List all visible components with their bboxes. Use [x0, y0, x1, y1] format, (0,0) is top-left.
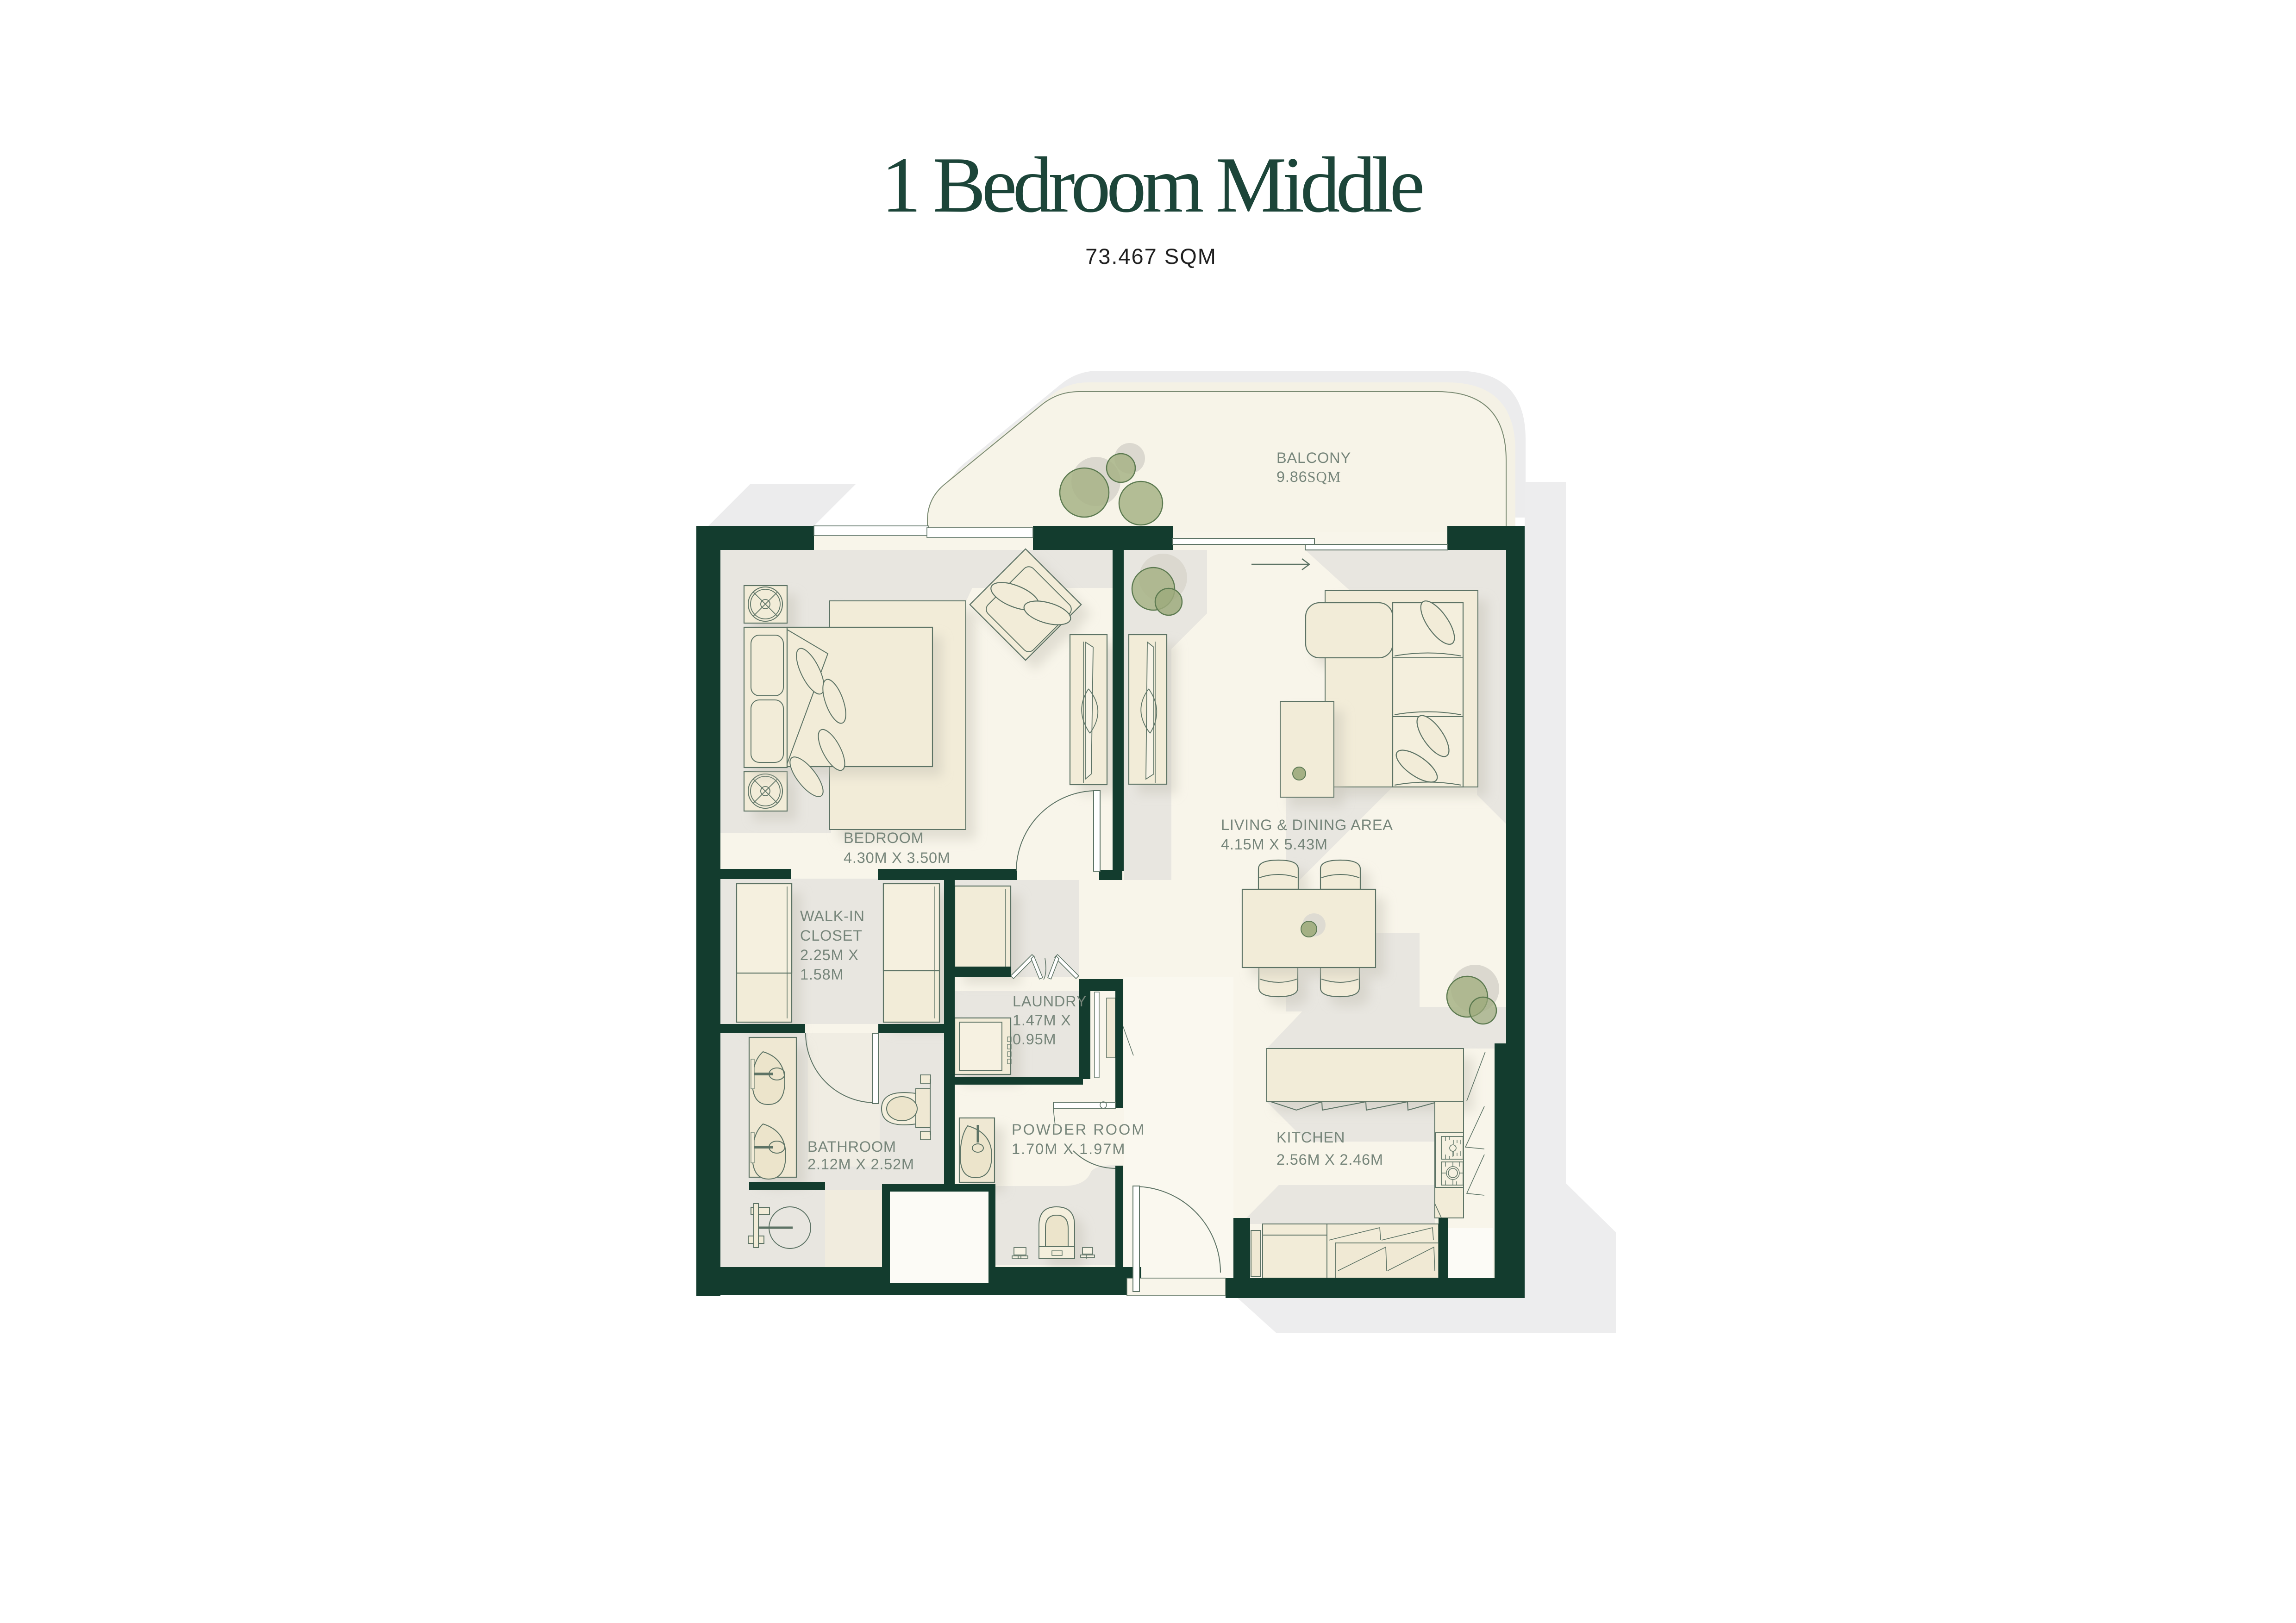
svg-text:KITCHEN: KITCHEN: [1276, 1129, 1345, 1146]
svg-text:73.467 SQM: 73.467 SQM: [1085, 244, 1217, 268]
svg-text:2.12M X 2.52M: 2.12M X 2.52M: [807, 1156, 914, 1173]
svg-text:1.47M X: 1.47M X: [1013, 1012, 1071, 1029]
svg-text:4.30M X 3.50M: 4.30M X 3.50M: [844, 849, 951, 866]
svg-text:1.70M X 1.97M: 1.70M X 1.97M: [1012, 1141, 1126, 1157]
svg-text:4.15M X 5.43M: 4.15M X 5.43M: [1221, 836, 1328, 853]
svg-text:1.58M: 1.58M: [800, 966, 844, 983]
svg-text:LAUNDRY: LAUNDRY: [1013, 993, 1087, 1010]
svg-text:2.56M X 2.46M: 2.56M X 2.46M: [1276, 1151, 1383, 1168]
svg-text:9.86SQM: 9.86SQM: [1276, 468, 1341, 486]
svg-text:LIVING & DINING AREA: LIVING & DINING AREA: [1221, 817, 1393, 833]
svg-text:BATHROOM: BATHROOM: [807, 1138, 896, 1155]
svg-text:0.95M: 0.95M: [1013, 1031, 1056, 1048]
svg-text:1 Bedroom Middle: 1 Bedroom Middle: [882, 141, 1423, 229]
svg-text:BEDROOM: BEDROOM: [844, 830, 924, 846]
svg-text:WALK-IN: WALK-IN: [800, 908, 865, 924]
svg-text:BALCONY: BALCONY: [1276, 449, 1351, 466]
svg-text:CLOSET: CLOSET: [800, 927, 863, 944]
svg-text:POWDER ROOM: POWDER ROOM: [1012, 1121, 1145, 1138]
svg-text:2.25M X: 2.25M X: [800, 947, 859, 963]
